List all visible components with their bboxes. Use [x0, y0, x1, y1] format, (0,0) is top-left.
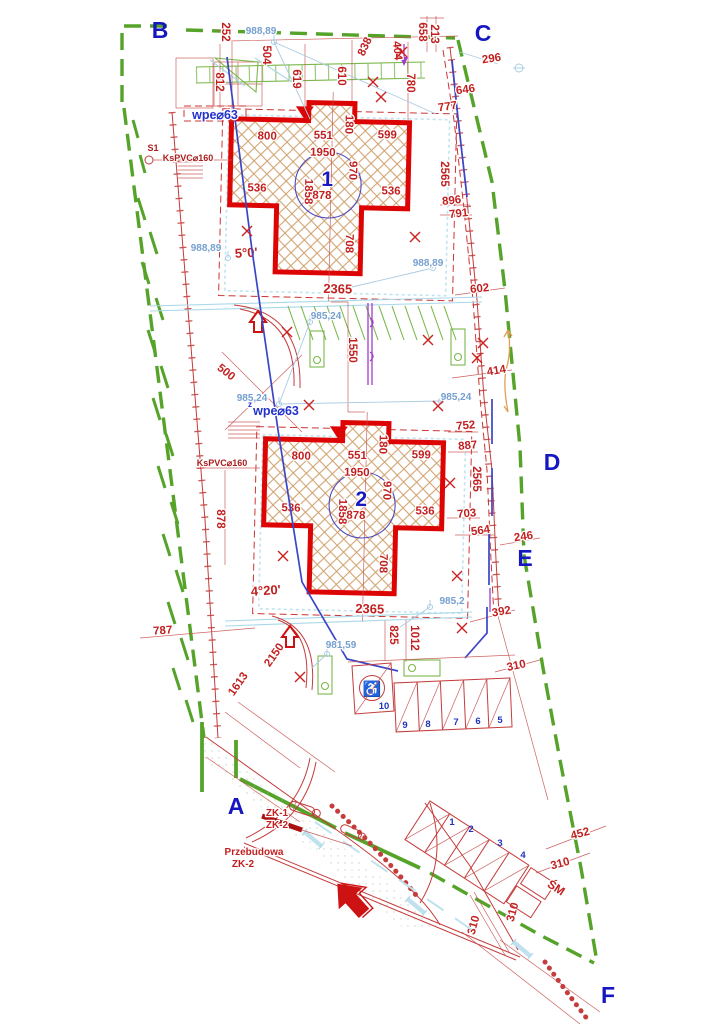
dim: 1550	[346, 337, 358, 363]
przebudowa-label2: ZK-2	[232, 859, 255, 870]
dim: 896	[442, 194, 462, 208]
site-plan-page: A B C D E F 800 551 599 180 1950 970 536…	[0, 0, 724, 1024]
elevation-label: 988,89	[191, 243, 222, 254]
building-2: 800 551 599 180 1950 970 536 1858 2 878 …	[250, 410, 473, 625]
stall-number: 8	[425, 719, 430, 730]
stall-number: 7	[453, 717, 458, 728]
dim: 619	[290, 69, 302, 88]
dim: 1950	[310, 147, 336, 160]
dim: 180	[376, 435, 388, 454]
dim: 500	[215, 362, 238, 383]
building-1: 800 551 599 180 1950 970 536 1858 1 878 …	[218, 90, 457, 305]
site-plan-drawing: A B C D E F 800 551 599 180 1950 970 536…	[0, 0, 724, 1024]
dim: 708	[377, 554, 389, 574]
roads	[202, 737, 600, 1024]
elevation-label: 988,89	[413, 258, 444, 269]
pipe-label-kspvc: KsPVC⌀160	[197, 458, 247, 468]
dim: 610	[335, 66, 347, 85]
manhole-label: S1	[147, 143, 158, 153]
dim: 1950	[344, 467, 370, 480]
pipe-label-kspvc: KsPVC⌀160	[163, 153, 213, 163]
dim: 310	[466, 914, 483, 936]
planter	[404, 660, 440, 676]
dim: 825	[387, 625, 399, 645]
dim: 970	[346, 161, 358, 180]
pipe-label-wpe63: wpe⌀63	[252, 404, 299, 418]
water-line-east	[452, 60, 467, 197]
dim: 887	[458, 439, 478, 453]
corner-a: A	[228, 793, 245, 819]
building-1-number: 1	[321, 168, 334, 191]
dim: 1613	[226, 670, 251, 698]
stall-number: 9	[402, 720, 407, 731]
stairs-2	[228, 422, 260, 438]
pipe-label-sup: z	[248, 400, 252, 409]
stall-number: 3	[497, 838, 502, 849]
wheelchair-glyph: ♿	[363, 680, 382, 698]
dim: 752	[456, 419, 476, 433]
dim: 504	[260, 45, 272, 65]
dim: 658	[416, 22, 428, 42]
dim: 452	[569, 826, 591, 843]
zk1-label: ZK-1	[266, 808, 289, 819]
corner-c: C	[475, 20, 492, 46]
dim: 878	[214, 509, 226, 529]
dim: 2150	[262, 641, 287, 669]
corner-f: F	[601, 982, 615, 1008]
dim: 310	[505, 901, 522, 923]
dim: 536	[247, 182, 266, 194]
dim: 777	[437, 100, 458, 115]
dim: 703	[457, 507, 477, 521]
dim: 800	[257, 130, 276, 142]
elevation-label: 985,24	[237, 393, 268, 404]
dim: 599	[412, 449, 431, 461]
planter	[318, 656, 332, 694]
entrance-arrow-icon	[282, 626, 298, 647]
elevation-label: 985,2	[439, 596, 464, 607]
stall-number: 5	[497, 715, 503, 726]
elevation-label: 985,24	[441, 392, 472, 403]
building-1-area: 878	[312, 190, 332, 202]
elevation-label: 985,24	[311, 311, 342, 322]
dim: 2365	[355, 601, 384, 617]
dim: 780	[404, 73, 416, 92]
dim: 800	[291, 450, 310, 462]
dim: 414	[486, 363, 508, 378]
building-2-angle: 4°20'	[250, 582, 281, 599]
dim: 310	[549, 856, 571, 873]
corner-b: B	[152, 17, 169, 43]
dim: 2565	[470, 466, 482, 492]
dim: 213	[428, 24, 440, 43]
dim: 551	[347, 450, 367, 462]
zk2-label: ZK-2	[266, 820, 289, 831]
dim: 180	[342, 115, 354, 134]
building-2-area: 878	[346, 510, 366, 522]
building-1-angle: 5°0'	[234, 244, 258, 260]
dim: 970	[380, 481, 392, 500]
przebudowa-label: Przebudowa	[225, 847, 284, 858]
elevation-label: 988,89	[246, 26, 277, 37]
stall-number: 4	[520, 850, 526, 861]
ramp-cross-1	[222, 352, 302, 432]
stall-number: 1	[449, 817, 455, 828]
dim: 791	[449, 207, 470, 221]
dim: 2365	[323, 281, 352, 297]
stall-number: 10	[379, 701, 390, 712]
driveway-surface	[202, 737, 440, 932]
dim: 602	[470, 282, 490, 296]
stall-number: 2	[468, 824, 473, 835]
dim: 599	[378, 129, 397, 141]
building-2-number: 2	[355, 488, 367, 511]
dim: 536	[381, 185, 400, 197]
dim: 310	[506, 658, 527, 674]
dim: 1012	[408, 625, 420, 651]
dim: 812	[213, 72, 225, 91]
dim: 708	[343, 234, 355, 254]
dim: 551	[313, 130, 333, 142]
corner-d: D	[544, 449, 561, 475]
planter	[451, 329, 465, 365]
stall-number: 6	[475, 716, 480, 727]
dim: 252	[219, 22, 231, 41]
dim: 787	[153, 624, 173, 637]
corner-e: E	[517, 545, 532, 571]
dim: 392	[491, 604, 512, 619]
dim: 2565	[438, 161, 450, 187]
parking-row-main: ♿ 10 9 8 7 6 5	[348, 655, 515, 732]
dim: 536	[415, 505, 434, 517]
pipe-label-wpe63: wpe⌀63	[191, 108, 238, 122]
manhole-s1	[145, 156, 153, 164]
cobble-strip	[545, 962, 588, 1020]
elevation-label: 981,59	[326, 640, 357, 651]
dim: 246	[513, 530, 534, 545]
dim: 296	[481, 52, 502, 67]
